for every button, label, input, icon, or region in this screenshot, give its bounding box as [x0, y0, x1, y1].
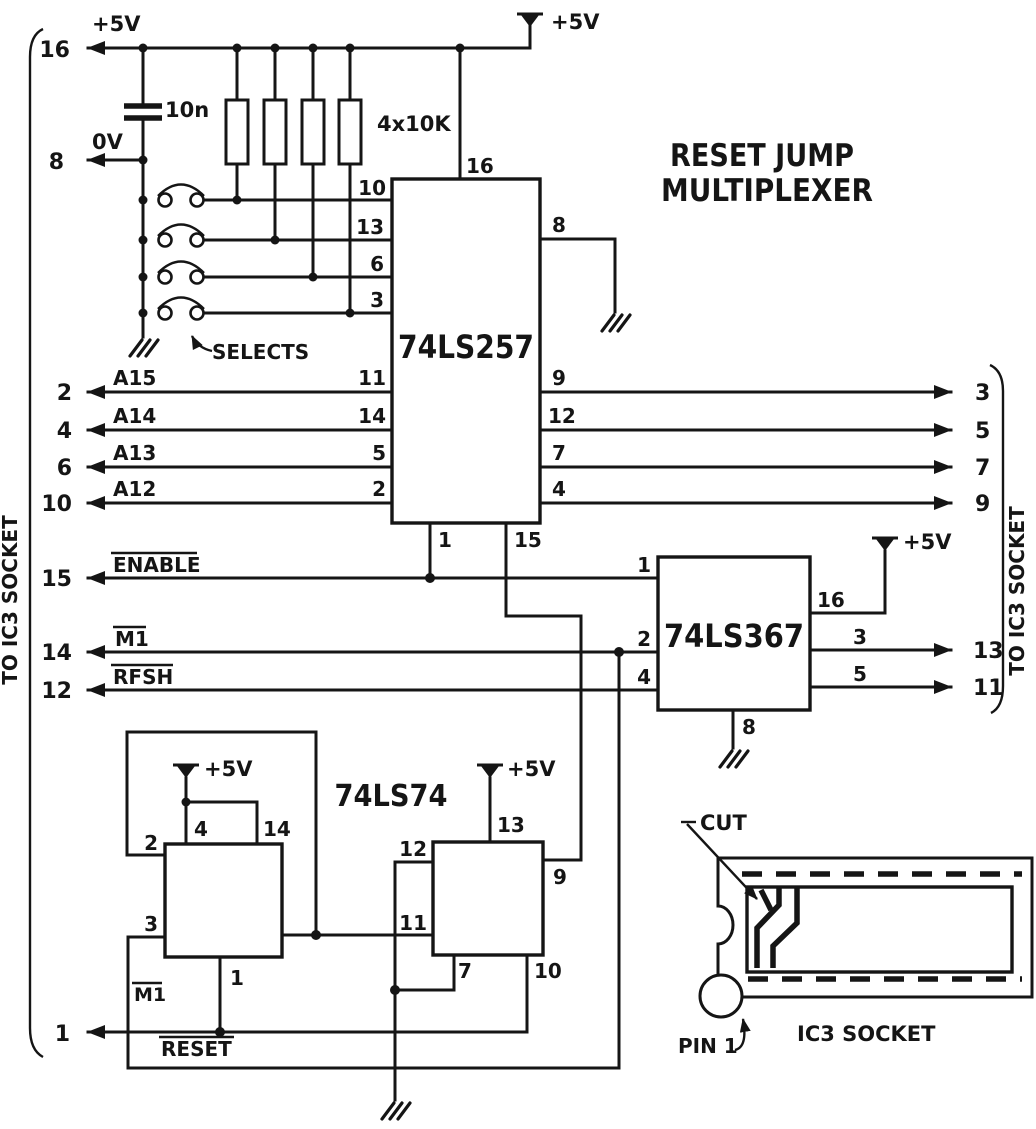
- pin1-label: PIN 1: [678, 1034, 738, 1058]
- socket-pin-7: 7: [975, 456, 990, 481]
- ls367-vcc-label: +5V: [903, 530, 952, 554]
- right-bracket-label: TO IC3 SOCKET: [1005, 506, 1029, 676]
- ff2-pin9: 9: [553, 865, 567, 889]
- capacitor-value-label: 10n: [165, 98, 209, 122]
- ls257-pin2: 2: [372, 477, 386, 501]
- ground-icon: [130, 340, 158, 356]
- vcc-left-label: +5V: [92, 12, 141, 36]
- a12-label: A12: [113, 477, 156, 501]
- socket-pin-6: 6: [57, 456, 72, 481]
- ff1-vcc-label: +5V: [204, 757, 253, 781]
- zero-volt-label: 0V: [92, 130, 124, 154]
- ls257-pin7: 7: [552, 441, 566, 465]
- select-switches: SELECTS: [130, 185, 392, 365]
- ls367-pin4: 4: [637, 665, 651, 689]
- ff2-pin10: 10: [534, 959, 562, 983]
- m1-clock-label: M1: [134, 984, 166, 1006]
- ic-74ls74: 74LS74 +5V +5V 4 14 2 3 1 M1 13 12 11 9 …: [55, 652, 619, 1119]
- rfsh-label: RFSH: [113, 665, 173, 689]
- ic-74ls367: 74LS367 1 2 4 +5V 16 3 5 13 11 8: [637, 530, 1004, 767]
- ic-74ls74-label: 74LS74: [335, 779, 448, 814]
- ls257-pin3: 3: [370, 288, 384, 312]
- socket-pin-3: 3: [975, 381, 990, 406]
- ff2-box: [433, 842, 543, 955]
- schematic-title: RESET JUMP MULTIPLEXER: [661, 138, 873, 209]
- vcc-symbol-icon: [477, 765, 503, 778]
- address-output-lines: 9 12 7 4 3 5 7 9: [540, 366, 990, 517]
- title-line2: MULTIPLEXER: [661, 173, 873, 209]
- resistor-value-label: 4x10K: [377, 112, 451, 136]
- ls257-pin14: 14: [358, 404, 386, 428]
- ls257-pin1: 1: [438, 528, 452, 552]
- cut-leader-arrow: [687, 824, 757, 899]
- socket-pin-2: 2: [57, 381, 72, 406]
- ff2-d-gnd-riser: [395, 862, 433, 1100]
- ls257-pin16: 16: [466, 154, 494, 178]
- ff2-pin7: 7: [458, 959, 472, 983]
- ff2-gnd-pin-wire: [398, 955, 454, 990]
- socket-pin-1: 1: [55, 1022, 70, 1047]
- ls257-pin11: 11: [358, 366, 386, 390]
- ff1-pin1: 1: [230, 966, 244, 990]
- ls367-pin3: 3: [853, 625, 867, 649]
- socket-pin-14: 14: [41, 641, 72, 666]
- select-switch-icon: [158, 185, 204, 207]
- socket-pin-8: 8: [49, 150, 64, 175]
- socket-pin-13: 13: [973, 639, 1004, 664]
- ls367-pin8: 8: [742, 715, 756, 739]
- vcc-top-label: +5V: [551, 10, 600, 34]
- address-input-lines: 2 4 6 10 A15 A14 A13 A12 11 14 5 2: [41, 366, 392, 517]
- ls257-pin9: 9: [552, 366, 566, 390]
- ls257-pin13: 13: [356, 215, 384, 239]
- ls367-pin5: 5: [853, 662, 867, 686]
- ic-74ls257-label: 74LS257: [398, 328, 534, 366]
- ff2-pin11: 11: [399, 911, 427, 935]
- ff1-pin3: 3: [144, 912, 158, 936]
- ground-icon: [602, 315, 630, 331]
- vcc-symbol-icon: [173, 765, 199, 778]
- pullup-resistor: [302, 100, 324, 164]
- socket-pin-9: 9: [975, 492, 990, 517]
- left-socket-bracket: TO IC3 SOCKET: [0, 29, 43, 1057]
- ff2-pin12: 12: [399, 837, 427, 861]
- socket-pin-5: 5: [975, 419, 990, 444]
- selects-pointer-icon: [192, 336, 212, 351]
- cut-label: CUT: [700, 811, 747, 835]
- vcc-symbol-icon: [517, 14, 543, 27]
- select-switch-icon: [158, 298, 204, 320]
- ic-74ls367-label: 74LS367: [664, 617, 804, 655]
- ground-icon: [720, 751, 748, 767]
- socket-pin-15: 15: [41, 567, 72, 592]
- ls257-pin6: 6: [370, 252, 384, 276]
- ls257-pin8: 8: [552, 213, 566, 237]
- m1-label: M1: [115, 627, 149, 651]
- ff2-vcc-label: +5V: [507, 757, 556, 781]
- socket-pin1-marker: [700, 975, 742, 1017]
- vcc-symbol-icon: [872, 538, 898, 551]
- pullup-resistor: [264, 100, 286, 164]
- ls257-gnd-wire: [540, 239, 615, 312]
- a15-label: A15: [113, 366, 156, 390]
- socket-pin-4: 4: [57, 419, 72, 444]
- ff2-pin13: 13: [497, 813, 525, 837]
- reset-label: RESET: [161, 1037, 232, 1061]
- ic3-socket-drawing: CUT PIN 1 IC3 SOCKET: [678, 811, 1032, 1058]
- selects-label: SELECTS: [212, 340, 309, 364]
- enable-label: ENABLE: [113, 553, 201, 577]
- ls367-pin1: 1: [637, 553, 651, 577]
- ls257-pin12: 12: [548, 404, 576, 428]
- ls257-pin10: 10: [358, 176, 386, 200]
- socket-pin-16: 16: [39, 38, 70, 63]
- ls257-pin5: 5: [372, 441, 386, 465]
- left-bracket-label: TO IC3 SOCKET: [0, 515, 22, 685]
- pullup-resistor: [339, 100, 361, 164]
- schematic-page: TO IC3 SOCKET TO IC3 SOCKET RESET JUMP M…: [0, 0, 1036, 1129]
- select-switch-icon: [158, 262, 204, 284]
- socket-pin-11: 11: [973, 676, 1004, 701]
- ff1-pin2: 2: [144, 831, 158, 855]
- socket-pin-12: 12: [41, 679, 72, 704]
- ls367-pin16: 16: [817, 588, 845, 612]
- socket-notch: [718, 906, 733, 944]
- ff1-box: [165, 844, 282, 957]
- ff1-pin14: 14: [263, 817, 291, 841]
- socket-pin-10: 10: [41, 492, 72, 517]
- ls257-pin15: 15: [514, 528, 542, 552]
- a14-label: A14: [113, 404, 156, 428]
- a13-label: A13: [113, 441, 156, 465]
- ls257-pin4: 4: [552, 477, 566, 501]
- reset-jump-multiplexer-schematic: TO IC3 SOCKET TO IC3 SOCKET RESET JUMP M…: [0, 0, 1036, 1129]
- ground-icon: [382, 1103, 410, 1119]
- ff1-pin4: 4: [194, 817, 208, 841]
- pullup-resistor: [226, 100, 248, 164]
- title-line1: RESET JUMP: [670, 138, 854, 174]
- select-switch-icon: [158, 225, 204, 247]
- ls367-pin2: 2: [637, 627, 651, 651]
- ic3-socket-caption: IC3 SOCKET: [797, 1022, 936, 1046]
